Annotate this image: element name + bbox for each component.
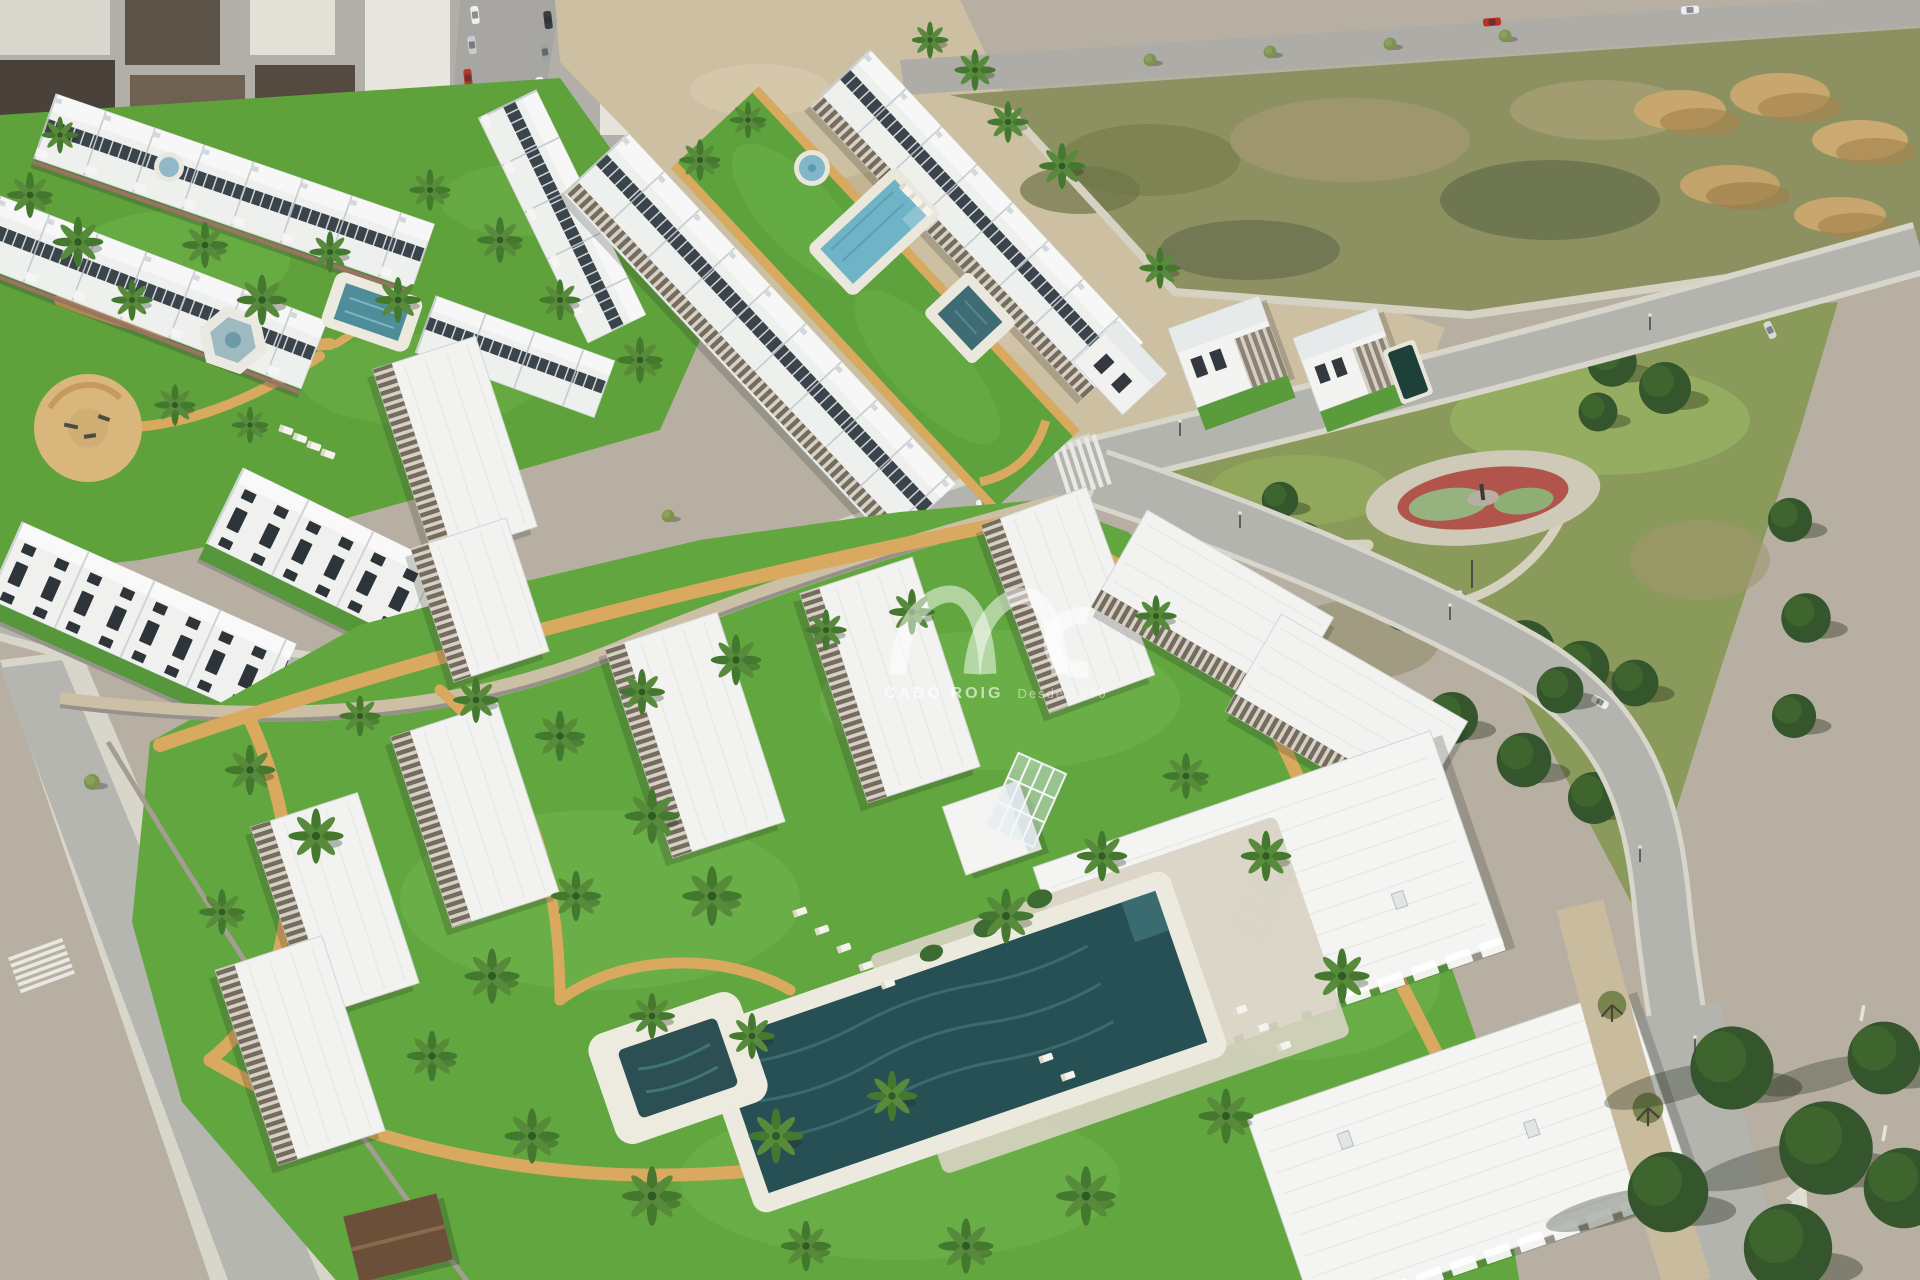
red-car [1483,17,1502,26]
central-plaza [34,374,142,482]
round-pool-small [154,152,184,182]
render-scene-svg [0,0,1920,1280]
round-fountain-pool [794,150,830,186]
aerial-site-render: CABO ROIGDesde 1970 [0,0,1920,1280]
